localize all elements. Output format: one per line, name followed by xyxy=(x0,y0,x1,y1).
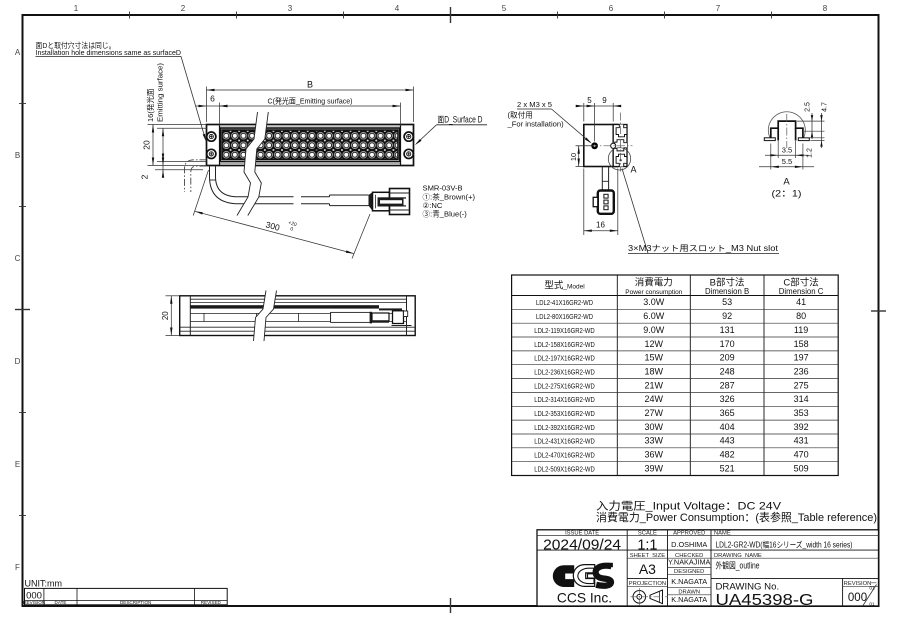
svg-text:131: 131 xyxy=(720,325,735,335)
svg-text:4.7: 4.7 xyxy=(822,102,829,112)
svg-text:353: 353 xyxy=(794,408,809,418)
svg-text:5.5: 5.5 xyxy=(782,157,792,166)
svg-text:470: 470 xyxy=(794,450,809,460)
svg-text:12W: 12W xyxy=(645,339,664,349)
svg-text:LDL2-197X16GR2-WD: LDL2-197X16GR2-WD xyxy=(534,354,595,363)
svg-text:326: 326 xyxy=(720,394,735,404)
svg-text:2.5: 2.5 xyxy=(805,102,812,112)
svg-text:APPROVED: APPROVED xyxy=(673,530,705,536)
svg-text:16(発光面: 16(発光面 xyxy=(145,88,155,122)
svg-text:LDL2-GR2-WD(幅16シリーズ_width 16 s: LDL2-GR2-WD(幅16シリーズ_width 16 series) xyxy=(716,539,853,549)
svg-text:275: 275 xyxy=(794,380,809,390)
svg-text:(2：1): (2：1) xyxy=(772,189,802,199)
svg-text:21W: 21W xyxy=(645,380,664,390)
svg-text:24W: 24W xyxy=(645,394,664,404)
svg-text:(取付用: (取付用 xyxy=(508,110,533,120)
svg-text:LDL2-158X16GR2-WD: LDL2-158X16GR2-WD xyxy=(534,340,595,349)
svg-text:6.0W: 6.0W xyxy=(643,311,665,321)
svg-text:33W: 33W xyxy=(645,436,664,446)
svg-text:面D_Surface D: 面D_Surface D xyxy=(438,115,483,125)
svg-text:SHEET SIZE: SHEET SIZE xyxy=(630,553,665,559)
svg-text:3×M3ナット用スロット_M3 Nut slot: 3×M3ナット用スロット_M3 Nut slot xyxy=(628,244,779,253)
svg-text:01: 01 xyxy=(869,586,875,592)
svg-text:3: 3 xyxy=(288,4,293,13)
svg-text:REVISION: REVISION xyxy=(844,581,872,587)
svg-text:K.NAGATA: K.NAGATA xyxy=(671,595,707,604)
svg-text:LDL2-314X16GR2-WD: LDL2-314X16GR2-WD xyxy=(534,395,595,404)
svg-text:B: B xyxy=(15,151,20,160)
svg-text:LDL2-392X16GR2-WD: LDL2-392X16GR2-WD xyxy=(534,423,595,432)
svg-text:287: 287 xyxy=(720,380,735,390)
svg-text:REVISION: REVISION xyxy=(23,600,45,605)
svg-text:248: 248 xyxy=(720,367,735,377)
svg-text:LDL2-236X16GR2-WD: LDL2-236X16GR2-WD xyxy=(534,368,595,377)
svg-text:1: 1 xyxy=(74,4,79,13)
svg-text:E: E xyxy=(15,460,20,469)
svg-text:NAME: NAME xyxy=(714,530,731,536)
svg-text:外観図_outline: 外観図_outline xyxy=(716,560,760,571)
svg-text:③:青_Blue(-): ③:青_Blue(-) xyxy=(423,209,468,219)
svg-text:①:茶_Brown(+): ①:茶_Brown(+) xyxy=(423,192,476,202)
svg-text:REVISED: REVISED xyxy=(201,600,222,605)
svg-text:443: 443 xyxy=(720,436,735,446)
svg-text:314: 314 xyxy=(794,394,809,404)
svg-text:170: 170 xyxy=(720,339,735,349)
svg-text:Emitting surface): Emitting surface) xyxy=(156,62,165,122)
svg-text:53: 53 xyxy=(722,297,732,307)
svg-text:41: 41 xyxy=(796,297,806,307)
svg-text:C(発光面_Emitting surface): C(発光面_Emitting surface) xyxy=(268,96,353,106)
svg-text:5: 5 xyxy=(502,4,507,13)
svg-text:39W: 39W xyxy=(645,463,664,473)
svg-text:36W: 36W xyxy=(645,450,664,460)
svg-text:PROJECTION: PROJECTION xyxy=(629,581,666,587)
svg-text:6: 6 xyxy=(609,4,614,13)
svg-text:ISSUE DATE: ISSUE DATE xyxy=(565,530,599,536)
svg-text:365: 365 xyxy=(720,408,735,418)
svg-text:F: F xyxy=(15,563,20,572)
svg-text:20: 20 xyxy=(142,140,152,150)
svg-text:A: A xyxy=(15,48,21,57)
svg-text:197: 197 xyxy=(794,353,809,363)
svg-text:LDL2-119X16GR2-WD: LDL2-119X16GR2-WD xyxy=(534,326,595,335)
svg-text:10: 10 xyxy=(569,153,578,161)
svg-text:A: A xyxy=(783,177,790,188)
svg-text:521: 521 xyxy=(720,463,735,473)
svg-text:1.2: 1.2 xyxy=(807,148,814,158)
svg-text:4: 4 xyxy=(395,4,400,13)
svg-text:LDL2-275X16GR2-WD: LDL2-275X16GR2-WD xyxy=(534,381,595,390)
svg-text:消費電力_Power Consumption：(表参照_Ta: 消費電力_Power Consumption：(表参照_Table refere… xyxy=(596,510,877,524)
svg-text:Y.NAKAJIMA: Y.NAKAJIMA xyxy=(668,558,711,567)
svg-text:DESIGNED: DESIGNED xyxy=(674,569,704,575)
svg-text:482: 482 xyxy=(720,450,735,460)
svg-text:209: 209 xyxy=(720,353,735,363)
svg-text:27W: 27W xyxy=(645,408,664,418)
svg-text:9: 9 xyxy=(602,96,607,105)
svg-text:UA45398-G: UA45398-G xyxy=(716,592,814,609)
svg-text:236: 236 xyxy=(794,367,809,377)
svg-text:119: 119 xyxy=(794,325,808,335)
svg-text:Dimension B: Dimension B xyxy=(705,287,749,296)
svg-text:80: 80 xyxy=(796,311,806,321)
svg-text:000: 000 xyxy=(848,592,867,604)
svg-text:C: C xyxy=(15,254,21,263)
svg-text:DATE: DATE xyxy=(55,600,67,605)
svg-text:2024/09/24: 2024/09/24 xyxy=(543,537,621,553)
svg-text:20: 20 xyxy=(161,311,170,320)
svg-text:消費電力: 消費電力 xyxy=(635,277,673,289)
svg-text:3.0W: 3.0W xyxy=(643,297,665,307)
svg-text:431: 431 xyxy=(794,436,809,446)
svg-text:92: 92 xyxy=(722,311,732,321)
svg-text:A: A xyxy=(631,165,637,175)
svg-text:15W: 15W xyxy=(645,353,664,363)
svg-text:Installation hole dimensions s: Installation hole dimensions same as sur… xyxy=(36,48,182,57)
svg-text:2: 2 xyxy=(140,174,150,179)
svg-text:LDL2-470X16GR2-WD: LDL2-470X16GR2-WD xyxy=(534,451,595,460)
svg-text:入力電圧_Input Voltage：DC 24V: 入力電圧_Input Voltage：DC 24V xyxy=(596,499,782,512)
svg-text:SCALE: SCALE xyxy=(638,530,657,536)
svg-text:158: 158 xyxy=(794,339,809,349)
svg-text:LDL2-41X16GR2-WD: LDL2-41X16GR2-WD xyxy=(536,298,593,307)
svg-text:UNIT:mm: UNIT:mm xyxy=(25,579,63,589)
svg-text:A3: A3 xyxy=(639,561,656,577)
svg-text:LDL2-80X16GR2-WD: LDL2-80X16GR2-WD xyxy=(536,312,593,321)
svg-text:509: 509 xyxy=(794,463,809,473)
svg-text:8: 8 xyxy=(823,4,828,13)
svg-text:DRAWING NAME: DRAWING NAME xyxy=(714,553,762,559)
svg-text:16: 16 xyxy=(596,221,605,230)
svg-text:01: 01 xyxy=(869,602,875,608)
svg-text:5: 5 xyxy=(587,96,592,105)
svg-text:Dimension C: Dimension C xyxy=(779,287,824,296)
svg-text:B: B xyxy=(307,80,313,90)
svg-text:9.0W: 9.0W xyxy=(643,325,665,335)
svg-text:CCS Inc.: CCS Inc. xyxy=(557,590,612,605)
svg-text:LDL2-509X16GR2-WD: LDL2-509X16GR2-WD xyxy=(534,464,595,473)
svg-text:1:1: 1:1 xyxy=(637,537,657,553)
svg-text:7: 7 xyxy=(716,4,721,13)
svg-text:392: 392 xyxy=(794,422,809,432)
svg-text:SMR-03V-B: SMR-03V-B xyxy=(423,184,463,193)
svg-text:404: 404 xyxy=(720,422,735,432)
svg-text:D.OSHIMA: D.OSHIMA xyxy=(671,540,707,549)
svg-text:Power consumption: Power consumption xyxy=(625,289,682,296)
svg-text:3.5: 3.5 xyxy=(782,146,792,155)
svg-text:K.NAGATA: K.NAGATA xyxy=(671,577,707,586)
svg-text:DESCRIPTION: DESCRIPTION xyxy=(120,600,151,605)
svg-text:LDL2-353X16GR2-WD: LDL2-353X16GR2-WD xyxy=(534,409,595,418)
svg-text:_For installation): _For installation) xyxy=(507,120,565,129)
svg-text:6: 6 xyxy=(210,94,215,104)
svg-text:2 x M3 x 5: 2 x M3 x 5 xyxy=(517,100,552,109)
svg-text:18W: 18W xyxy=(645,367,664,377)
svg-text:D: D xyxy=(15,357,21,366)
svg-text:LDL2-431X16GR2-WD: LDL2-431X16GR2-WD xyxy=(534,437,595,446)
svg-text:30W: 30W xyxy=(645,422,664,432)
svg-text:2: 2 xyxy=(181,4,186,13)
